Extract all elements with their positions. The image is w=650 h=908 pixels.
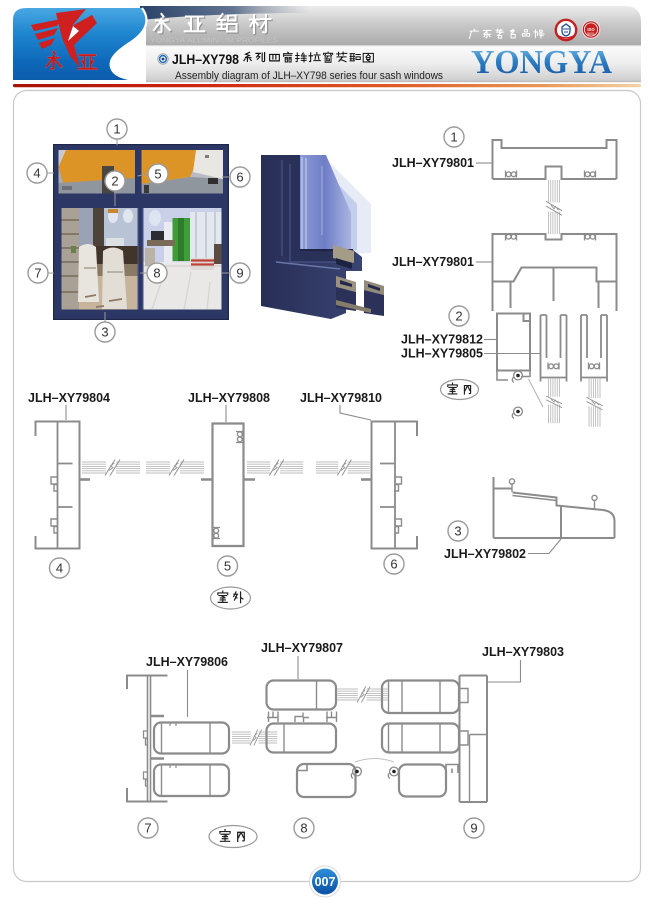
svg-text:7: 7 xyxy=(144,821,151,836)
svg-text:6: 6 xyxy=(236,170,243,185)
svg-text:JLH–XY79806: JLH–XY79806 xyxy=(146,654,228,669)
svg-text:2: 2 xyxy=(111,174,118,189)
svg-text:JLH–XY798: JLH–XY798 xyxy=(172,52,239,67)
svg-text:9001: 9001 xyxy=(587,32,595,36)
svg-text:1: 1 xyxy=(113,122,120,137)
svg-text:2: 2 xyxy=(455,309,462,324)
svg-text:3: 3 xyxy=(101,325,108,340)
svg-text:JLH–XY79802: JLH–XY79802 xyxy=(444,546,526,561)
svg-text:Assembly diagram of JLH–XY798: Assembly diagram of JLH–XY798 series fou… xyxy=(175,70,443,82)
svg-text:JLH–XY79812: JLH–XY79812 xyxy=(401,332,483,347)
svg-text:JLH–XY79804: JLH–XY79804 xyxy=(28,390,111,405)
svg-text:4: 4 xyxy=(33,166,40,181)
svg-text:JLH–XY79810: JLH–XY79810 xyxy=(300,390,382,405)
svg-text:YONGYA: YONGYA xyxy=(471,44,612,81)
svg-text:JLH–XY79803: JLH–XY79803 xyxy=(482,644,564,659)
svg-text:5: 5 xyxy=(224,559,231,574)
svg-text:JLH–XY79801: JLH–XY79801 xyxy=(392,254,474,269)
svg-text:9: 9 xyxy=(236,266,243,281)
svg-text:9: 9 xyxy=(470,821,477,836)
svg-text:1: 1 xyxy=(450,130,457,145)
svg-text:007: 007 xyxy=(315,875,336,889)
svg-text:YONGYA ALUMINIUM PROFILES: YONGYA ALUMINIUM PROFILES xyxy=(150,36,278,45)
svg-text:JLH–XY79801: JLH–XY79801 xyxy=(392,155,474,170)
svg-text:5: 5 xyxy=(154,167,161,182)
svg-text:JLH–XY79805: JLH–XY79805 xyxy=(401,346,483,361)
svg-text:JLH–XY79807: JLH–XY79807 xyxy=(261,640,343,655)
svg-text:6: 6 xyxy=(390,557,397,572)
svg-text:3: 3 xyxy=(454,524,461,539)
svg-text:7: 7 xyxy=(34,266,41,281)
svg-text:JLH–XY79808: JLH–XY79808 xyxy=(188,390,270,405)
svg-text:8: 8 xyxy=(153,266,160,281)
svg-text:4: 4 xyxy=(56,561,63,576)
svg-text:8: 8 xyxy=(300,821,307,836)
